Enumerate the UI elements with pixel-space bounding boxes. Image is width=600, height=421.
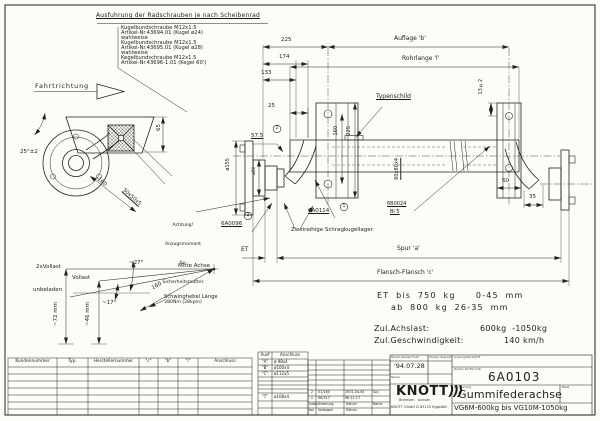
axle-load-label: Zul.Achslast: xyxy=(374,325,429,333)
dim-60: 60 xyxy=(502,179,509,185)
dim-angle-25: 25°±2 xyxy=(20,150,38,156)
axle-center-label: Mitte Achse xyxy=(178,264,210,270)
variant-col1-header: Ausf xyxy=(258,353,272,357)
company-name: KNOTT xyxy=(396,384,449,399)
revision-footer2-index: bei xyxy=(309,409,314,412)
angle-27-label: ~27° xyxy=(129,261,143,267)
company-logo: KNOTT))) xyxy=(396,385,462,399)
support-span-label: Auflage 'b' xyxy=(394,36,426,42)
revision-footer-date: Datum xyxy=(346,403,357,406)
flange-flange-label: Flansch-Flansch 'c' xyxy=(377,270,433,276)
warning-line: 280Nm (28kpm) xyxy=(152,300,214,306)
company-logo-arcs-icon: ))) xyxy=(449,384,462,399)
dim-174: 174 xyxy=(279,55,290,61)
revision-footer-change: Änderung xyxy=(318,403,334,406)
load-full-label: Vollast xyxy=(72,276,90,282)
tube-length-label: Rohrlange 'l' xyxy=(402,56,439,62)
load-2xfull-label: 2xVollast xyxy=(36,265,61,271)
index-circle-2: 2 xyxy=(245,213,251,217)
sheet-label: Blatt xyxy=(562,386,569,389)
warning-line: Achtung! xyxy=(152,223,214,229)
dim-65: 65 xyxy=(157,124,163,131)
col-header-connection: Anschluss xyxy=(198,360,252,365)
axle-load-value: 600kg -1050kg xyxy=(480,325,547,333)
speed-label: Zul.Geschwindigkeit: xyxy=(374,337,464,345)
revision-footer2-done: Vollzogen xyxy=(318,409,333,412)
dim-133: 133 xyxy=(261,71,272,77)
revision-footer-index: Index xyxy=(309,403,318,406)
dim-25: 25 xyxy=(268,104,275,110)
variant-key: "T" xyxy=(258,395,272,399)
col-header-customer-no: Kundennummer xyxy=(8,360,57,365)
revision-index: 2 xyxy=(308,391,316,395)
col-header-manufacturer-no: Herstellernummer xyxy=(88,360,139,365)
swing-arm-length-label: Schwinghebel Länge xyxy=(164,295,218,300)
dim-225-top: 225 xyxy=(281,38,292,44)
height-46mm-label: ~46 mm xyxy=(86,302,92,326)
variant-key: "A" xyxy=(258,360,272,364)
dim-13: 13±2 xyxy=(479,79,484,95)
col-header-c: "c" xyxy=(139,360,158,365)
dim-dia56: ø56 xyxy=(252,167,256,175)
bolt-note-line: Artikel-Nr.43696-1.01 (Kegel 60') xyxy=(121,61,206,66)
drawing-title: Gummifederachse xyxy=(458,389,562,401)
revision-date: 2001.04.04 xyxy=(345,391,364,395)
bolt-note-title: Ausfuhrung der Radschrauben je nach Sche… xyxy=(96,13,260,19)
revision-footer-name: Name xyxy=(373,403,382,406)
warning-line: Anzugsmoment xyxy=(152,242,214,248)
variant-value: ø100x4 xyxy=(274,366,289,370)
height-72mm-label: ~72 mm xyxy=(54,302,60,326)
checked-label: Überpr./Geprüft xyxy=(429,356,452,359)
technical-drawing-sheet: Ausfuhrung der Radschrauben je nach Sche… xyxy=(0,0,600,421)
dim-160-vert: 160 xyxy=(334,126,339,136)
drawing-number: 6A0103 xyxy=(488,371,540,384)
track-label: Spur 'a' xyxy=(397,246,420,252)
material-label: Auszug/Werkstoff xyxy=(454,356,480,359)
part-number-6a0114: 6A0114 xyxy=(308,209,329,215)
drawing-linework xyxy=(0,0,600,421)
variant-key: "B" xyxy=(258,366,272,370)
drawing-date: '94.07.28 xyxy=(394,363,425,370)
dim-dia155: ø155 xyxy=(226,158,231,171)
revision-index: 1 xyxy=(308,397,316,401)
revision-no: 96/317 xyxy=(318,397,330,401)
drawn-label: Bearb./Gezeichnet xyxy=(391,356,419,359)
variant-value: ø 98x4 xyxy=(274,360,288,364)
part-number-6b0024: 6B0024 xyxy=(387,202,406,207)
et-label: ET xyxy=(241,247,248,253)
revision-no: 01/160 xyxy=(318,391,330,395)
load-empty-label: unbeladen xyxy=(33,288,62,294)
angle-17-label: ~17° xyxy=(102,301,116,307)
part-number-6a0096: 6A0096 xyxy=(221,222,242,228)
revision-footer2-date: Datum xyxy=(346,409,357,412)
bearing-label: Zweireihige Schragkugellager xyxy=(291,228,373,234)
speed-value: 140 km/h xyxy=(504,337,544,345)
drawing-subtitle: VG6M-600kg bis VG10M-1050kg xyxy=(454,405,568,412)
col-header-l: "l" xyxy=(178,360,198,365)
tube-section-label: 80x80x4 xyxy=(395,158,401,180)
dim-57-5: 57.5 xyxy=(251,134,263,140)
index-circle-2b: 2 xyxy=(274,126,280,130)
et-spec-row1: ET bis 750 kg 0-45 mm xyxy=(377,292,524,300)
regno-label: Zeichn-Nr/Fach-Nr xyxy=(454,368,481,371)
company-address: KNOTT GmbH D 83125 Eggstätt xyxy=(391,406,447,410)
variant-col2-header: Anschluss xyxy=(272,353,308,357)
dim-225-vert: 225 xyxy=(347,126,352,136)
col-header-type: Typ. xyxy=(57,360,88,365)
revision-name: Sa.J xyxy=(373,391,379,395)
direction-label: Fahrtrichtung xyxy=(35,83,89,90)
dim-35: 35 xyxy=(529,195,536,201)
name-label: Name xyxy=(391,376,400,379)
variant-value: ø112x5 xyxy=(274,372,289,376)
typeplate-label: Typenschild xyxy=(376,94,411,100)
index-circle-1: 1 xyxy=(341,204,347,208)
variant-value: ø108x4 xyxy=(274,395,289,399)
revision-date: 96.11.17 xyxy=(345,397,360,401)
variant-key: "C" xyxy=(258,372,272,376)
company-sub: Bremsen Achsen xyxy=(399,399,431,403)
sheet-label-bl5: Bl 5 xyxy=(390,210,400,215)
et-spec-row2: ab 800 kg 26-35 mm xyxy=(391,304,509,312)
col-header-b: "b" xyxy=(158,360,178,365)
